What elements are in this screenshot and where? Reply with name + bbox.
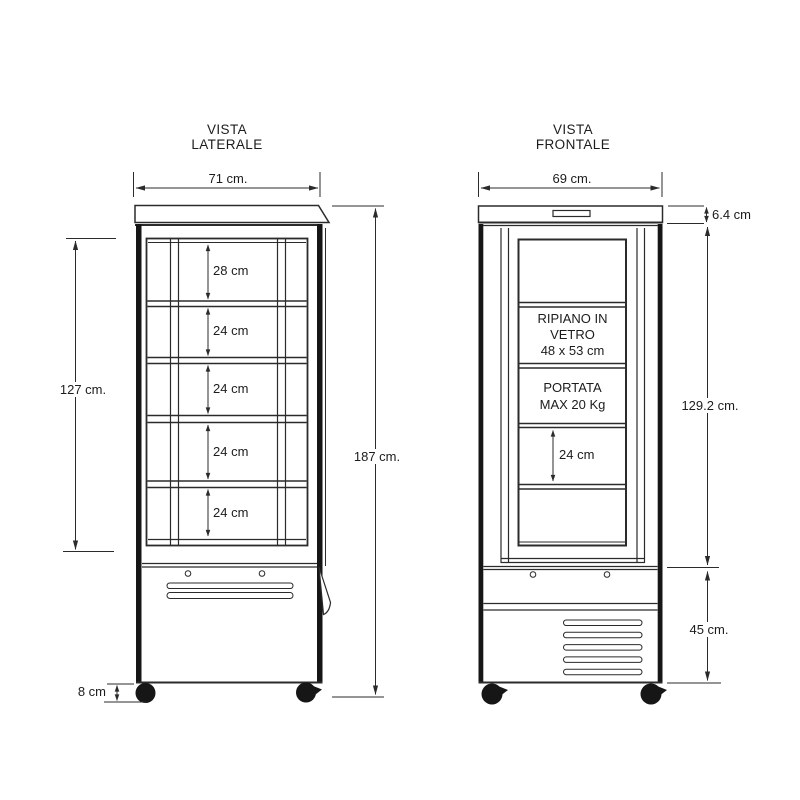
side-top-panel xyxy=(135,206,329,223)
front-view-title-line1: VISTA xyxy=(493,122,653,137)
side-height-dim-label: 187 cm. xyxy=(342,449,412,465)
caster-wheel xyxy=(641,684,668,705)
front-top-dim-label: 6.4 cm xyxy=(712,207,751,223)
front-handle xyxy=(553,211,590,217)
screw-icon xyxy=(530,572,536,578)
side-width-dim-label: 71 cm. xyxy=(153,171,303,187)
screw-icon xyxy=(604,572,610,578)
shelf-gap-label: 24 cm xyxy=(213,505,248,521)
side-vent-slat xyxy=(167,593,293,599)
caster-wheel xyxy=(296,683,322,703)
front-view-title-line2: FRONTALE xyxy=(493,137,653,152)
front-left-post xyxy=(479,224,484,683)
front-right-post xyxy=(658,224,663,683)
front-view-title: VISTA FRONTALE xyxy=(493,122,653,152)
side-caster-dim-label: 8 cm xyxy=(58,684,106,700)
front-vent-grille xyxy=(564,620,643,675)
front-door-dim-label: 129.2 cm. xyxy=(668,398,752,414)
side-view-title: VISTA LATERALE xyxy=(147,122,307,152)
side-vent-slat xyxy=(167,583,293,589)
caster-wheel xyxy=(482,684,509,705)
side-right-post xyxy=(317,224,323,683)
technical-drawing-page: VISTA LATERALE 71 cm. 28 cm 24 cm 24 cm … xyxy=(0,0,800,800)
side-interior-dim-label: 127 cm. xyxy=(46,382,120,398)
side-view-dimensions xyxy=(63,172,384,702)
caster-wheel xyxy=(136,683,156,703)
front-width-dim-label: 69 cm. xyxy=(492,171,652,187)
side-left-post xyxy=(136,224,142,683)
front-base-dim-label: 45 cm. xyxy=(670,622,748,638)
capacity-note: PORTATA MAX 20 Kg xyxy=(512,379,633,413)
glass-shelf-note: RIPIANO IN VETRO 48 x 53 cm xyxy=(512,311,633,359)
side-view-title-line1: VISTA xyxy=(147,122,307,137)
shelf-gap-label: 28 cm xyxy=(213,263,248,279)
side-view-title-line2: LATERALE xyxy=(147,137,307,152)
shelf-gap-label: 24 cm xyxy=(213,323,248,339)
screw-icon xyxy=(185,571,191,577)
screw-icon xyxy=(259,571,265,577)
shelf-gap-label: 24 cm xyxy=(213,381,248,397)
shelf-gap-label: 24 cm xyxy=(213,444,248,460)
front-shelf-gap-label: 24 cm xyxy=(559,447,594,463)
